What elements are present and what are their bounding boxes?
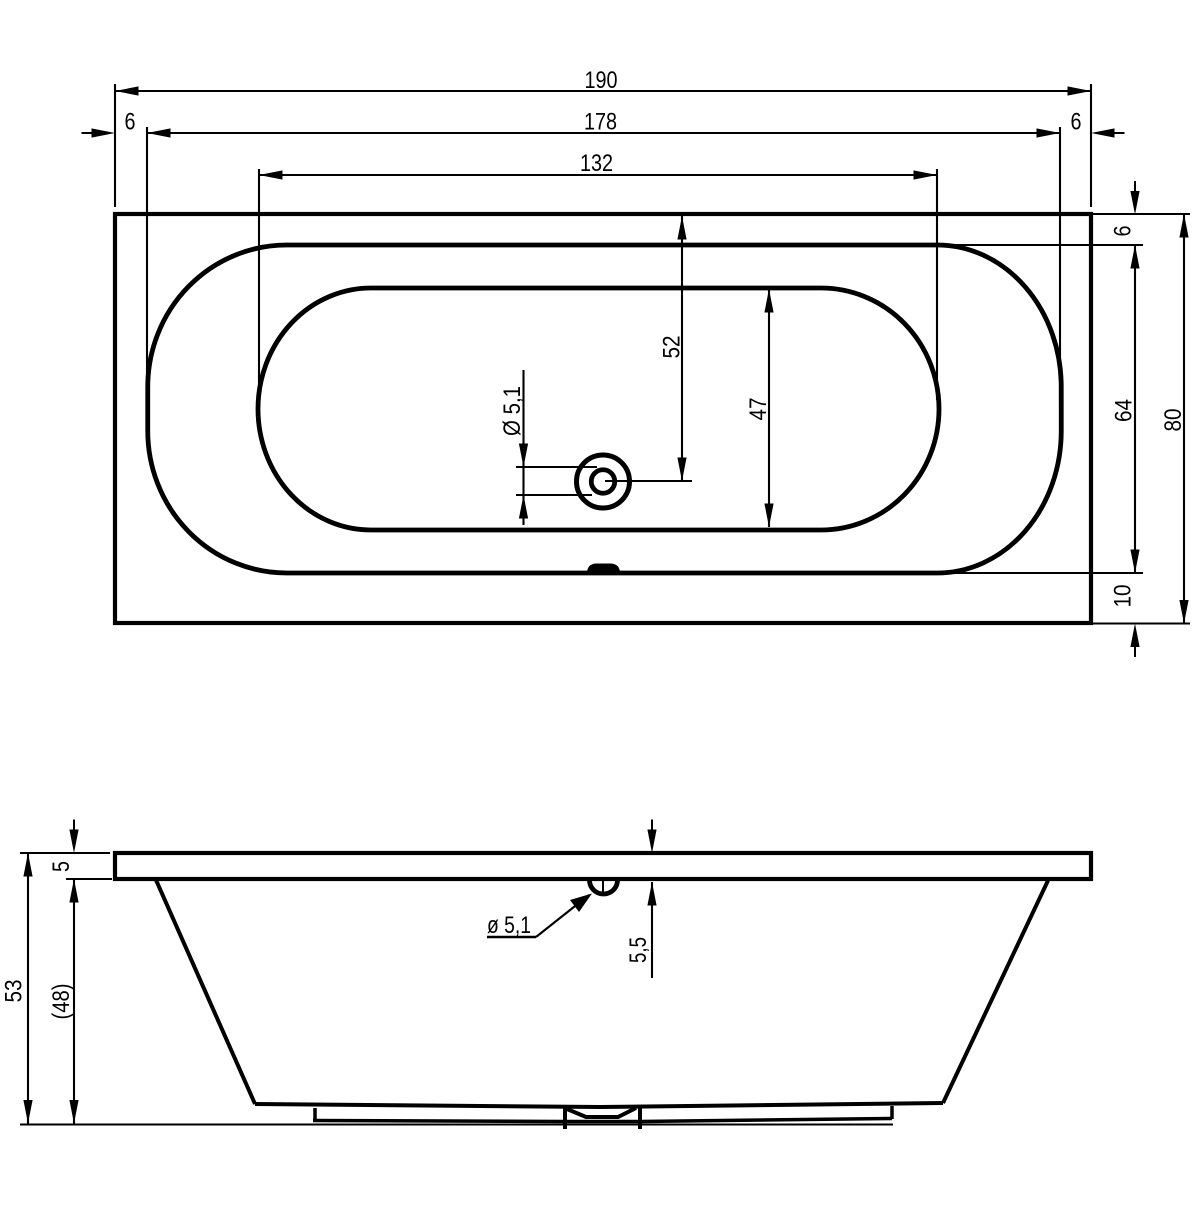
svg-text:52: 52 <box>659 336 686 359</box>
svg-text:47: 47 <box>745 398 772 421</box>
svg-text:5,5: 5,5 <box>625 937 652 963</box>
svg-text:178: 178 <box>584 109 617 136</box>
svg-text:ø 5,1: ø 5,1 <box>487 912 531 939</box>
svg-text:53: 53 <box>1 980 28 1003</box>
svg-text:6: 6 <box>1110 226 1137 237</box>
svg-text:6: 6 <box>125 109 136 136</box>
svg-text:80: 80 <box>1160 409 1187 432</box>
svg-text:10: 10 <box>1110 585 1137 608</box>
svg-text:(48): (48) <box>48 984 75 1020</box>
svg-text:Ø 5,1: Ø 5,1 <box>499 386 526 436</box>
svg-text:132: 132 <box>580 150 613 177</box>
svg-text:64: 64 <box>1111 399 1138 422</box>
svg-text:6: 6 <box>1071 109 1082 136</box>
svg-text:190: 190 <box>585 67 618 94</box>
svg-text:5: 5 <box>48 861 75 872</box>
